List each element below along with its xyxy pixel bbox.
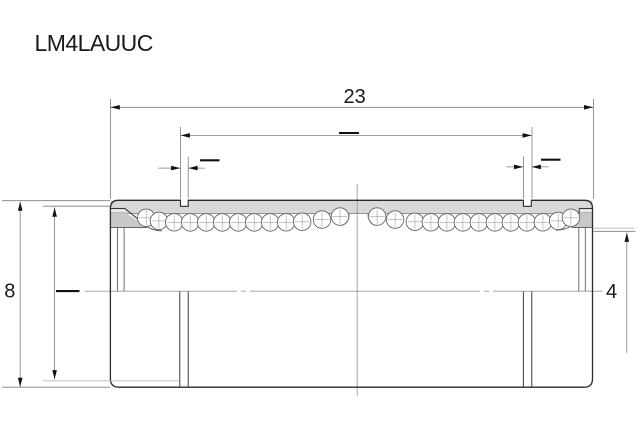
svg-text:4: 4 [606,281,617,303]
svg-text:LM4LAUUC: LM4LAUUC [35,30,153,56]
svg-text:8: 8 [4,281,15,303]
svg-text:23: 23 [343,86,365,108]
